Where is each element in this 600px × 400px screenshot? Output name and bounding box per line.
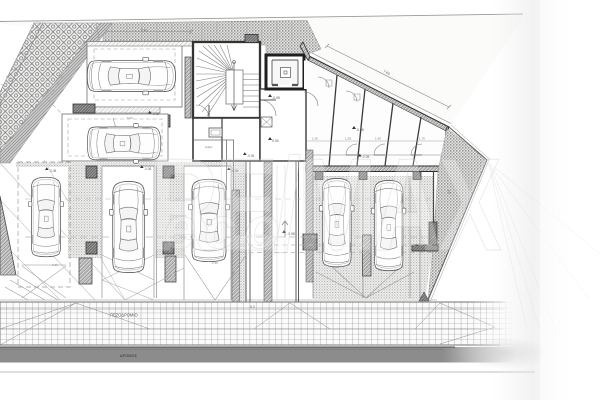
svg-text:5.40: 5.40 [141,29,147,33]
svg-text:-0.08: -0.08 [152,112,159,116]
svg-text:6.2: 6.2 [250,305,255,309]
svg-text:eco: eco [164,196,288,261]
svg-text:-0.08: -0.08 [49,169,56,173]
svg-text:ΠΕΖΟΔΡΟΜΙΟ: ΠΕΖΟΔΡΟΜΙΟ [110,313,138,318]
svg-text:-0.05: -0.05 [272,96,280,100]
svg-text:2.30: 2.30 [52,263,58,267]
svg-text:ΔΡΟΜΟΣ: ΔΡΟΜΟΣ [120,354,138,358]
svg-text:5.00: 5.00 [127,116,133,120]
